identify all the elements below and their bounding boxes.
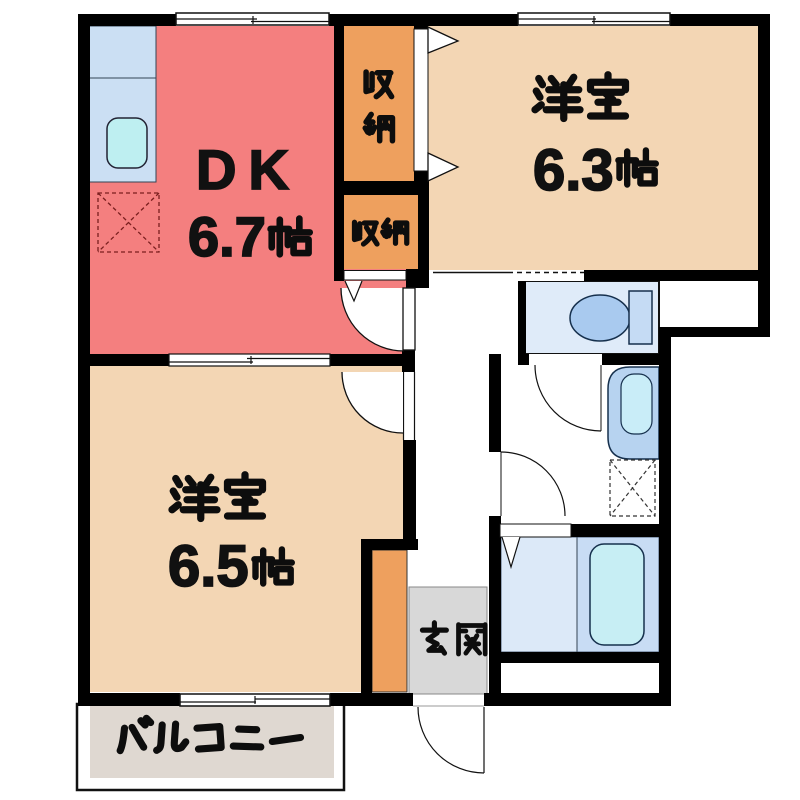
svg-text:6.5: 6.5	[168, 534, 249, 599]
svg-text:6.7: 6.7	[188, 205, 266, 268]
svg-text:DK: DK	[196, 138, 301, 201]
svg-text:6.3: 6.3	[533, 138, 614, 203]
